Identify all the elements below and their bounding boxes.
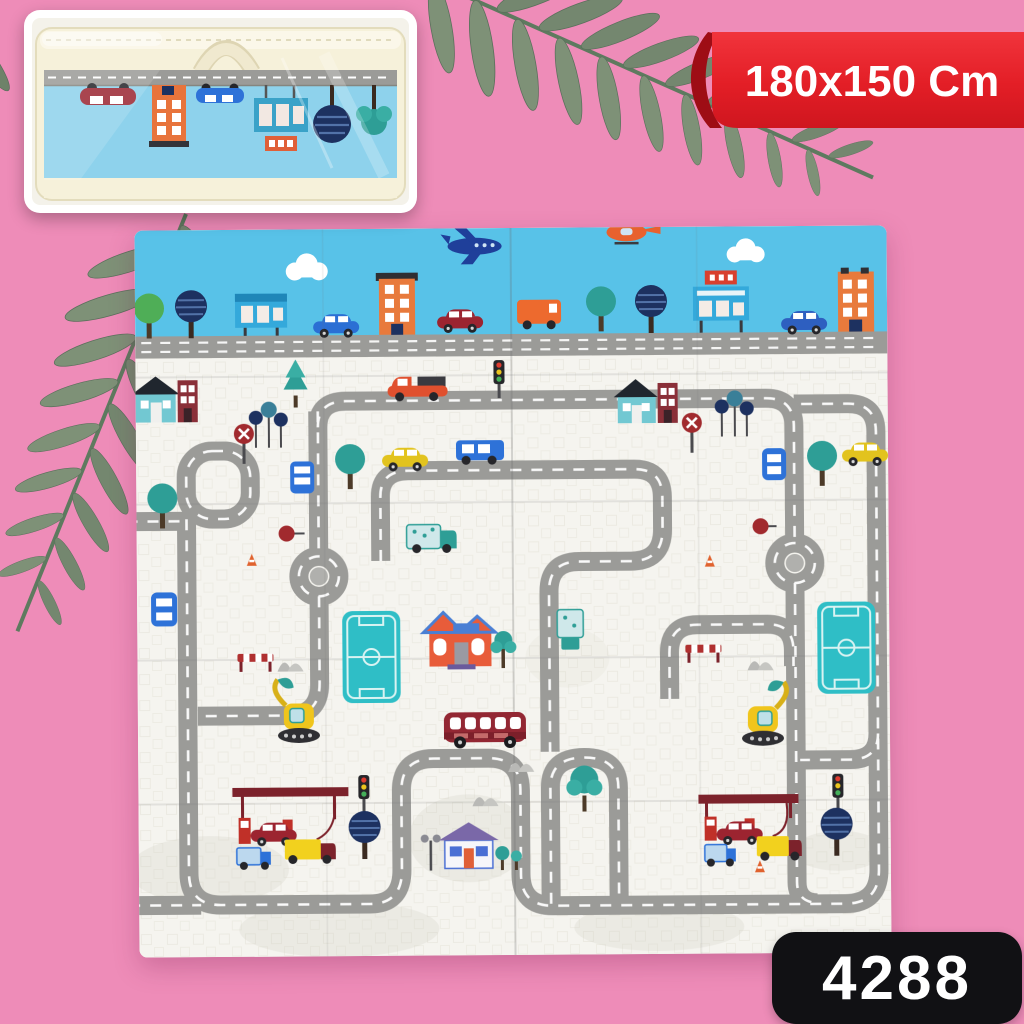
- soccer-field-right: [817, 601, 876, 693]
- soccer-field-left: [342, 611, 401, 703]
- red-building-left: [178, 380, 198, 422]
- red-building-right: [658, 383, 678, 423]
- blue-car-right-vertical: [762, 448, 786, 480]
- blue-bus-small: [290, 461, 314, 493]
- size-label: 180x150 Cm: [745, 57, 999, 106]
- product-code: 4288: [822, 943, 972, 1014]
- product-image: 180x150 Cm 4288: [0, 0, 1024, 1024]
- roundabout-right: [786, 554, 804, 572]
- play-mat: [134, 225, 891, 957]
- size-banner: 180x150 Cm: [672, 26, 1024, 146]
- palm-leaf-corner-icon: [0, 24, 15, 216]
- inset-photo: [24, 10, 417, 213]
- blue-car-left-edge: [151, 592, 177, 626]
- product-code-badge: 4288: [772, 932, 1022, 1024]
- upside-down-orange-building: [149, 85, 189, 147]
